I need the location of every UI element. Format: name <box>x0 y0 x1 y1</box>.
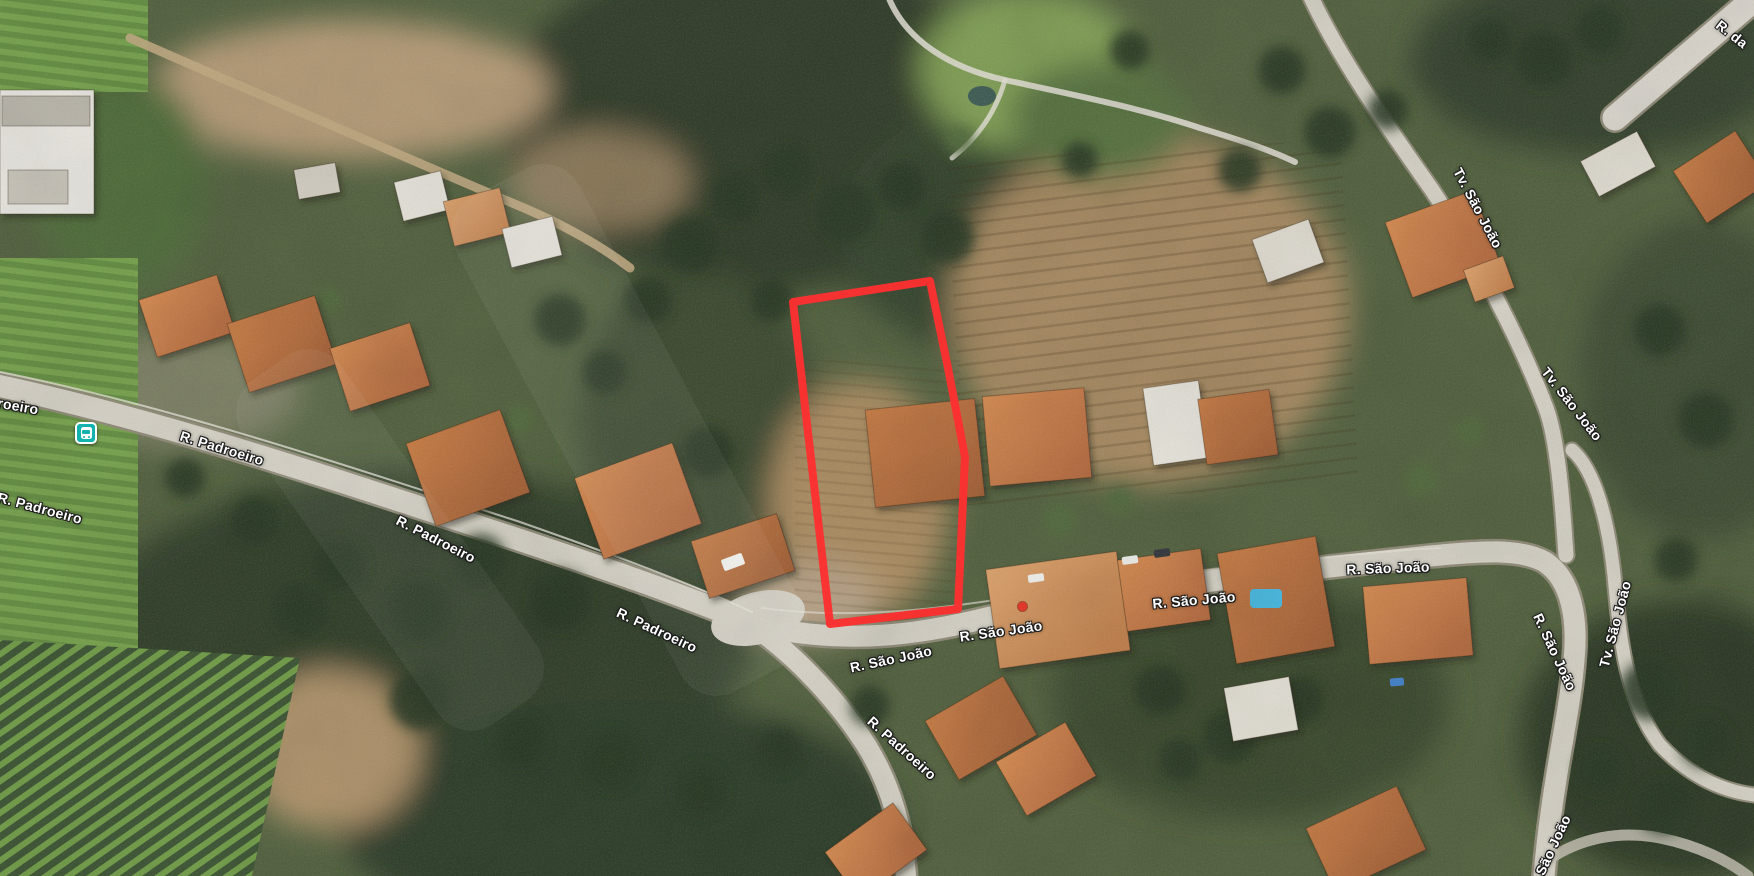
red-dot-marker <box>1018 602 1027 611</box>
bus-stop-icon[interactable] <box>75 422 97 444</box>
satellite-map[interactable]: roeiroR. PadroeiroR. PadroeiroR. Padroei… <box>0 0 1754 876</box>
bus-icon <box>81 427 92 439</box>
